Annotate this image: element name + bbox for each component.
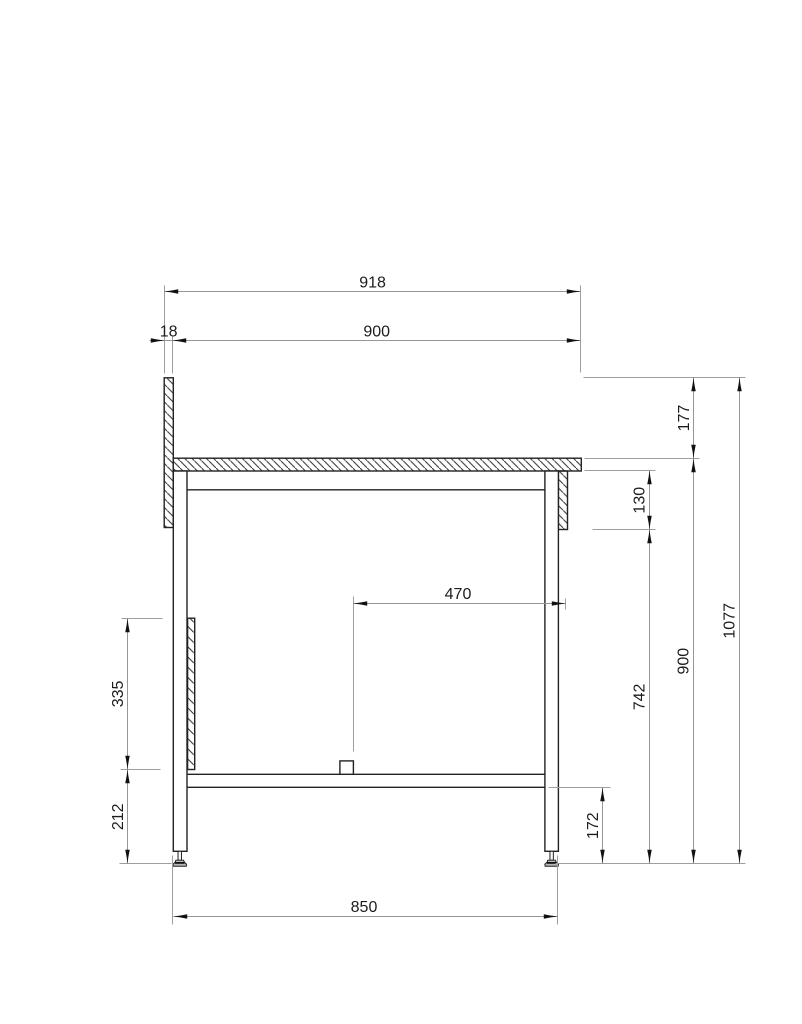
svg-text:172: 172 bbox=[585, 812, 602, 839]
svg-text:18: 18 bbox=[160, 324, 178, 341]
svg-text:335: 335 bbox=[110, 680, 127, 707]
svg-text:918: 918 bbox=[359, 274, 386, 291]
svg-text:900: 900 bbox=[363, 324, 390, 341]
svg-text:742: 742 bbox=[631, 683, 648, 710]
svg-text:900: 900 bbox=[676, 648, 693, 675]
svg-text:850: 850 bbox=[351, 899, 378, 916]
svg-text:470: 470 bbox=[445, 586, 472, 603]
svg-text:1077: 1077 bbox=[722, 603, 739, 639]
svg-text:177: 177 bbox=[676, 405, 693, 432]
svg-text:212: 212 bbox=[110, 803, 127, 830]
svg-text:130: 130 bbox=[631, 487, 648, 514]
